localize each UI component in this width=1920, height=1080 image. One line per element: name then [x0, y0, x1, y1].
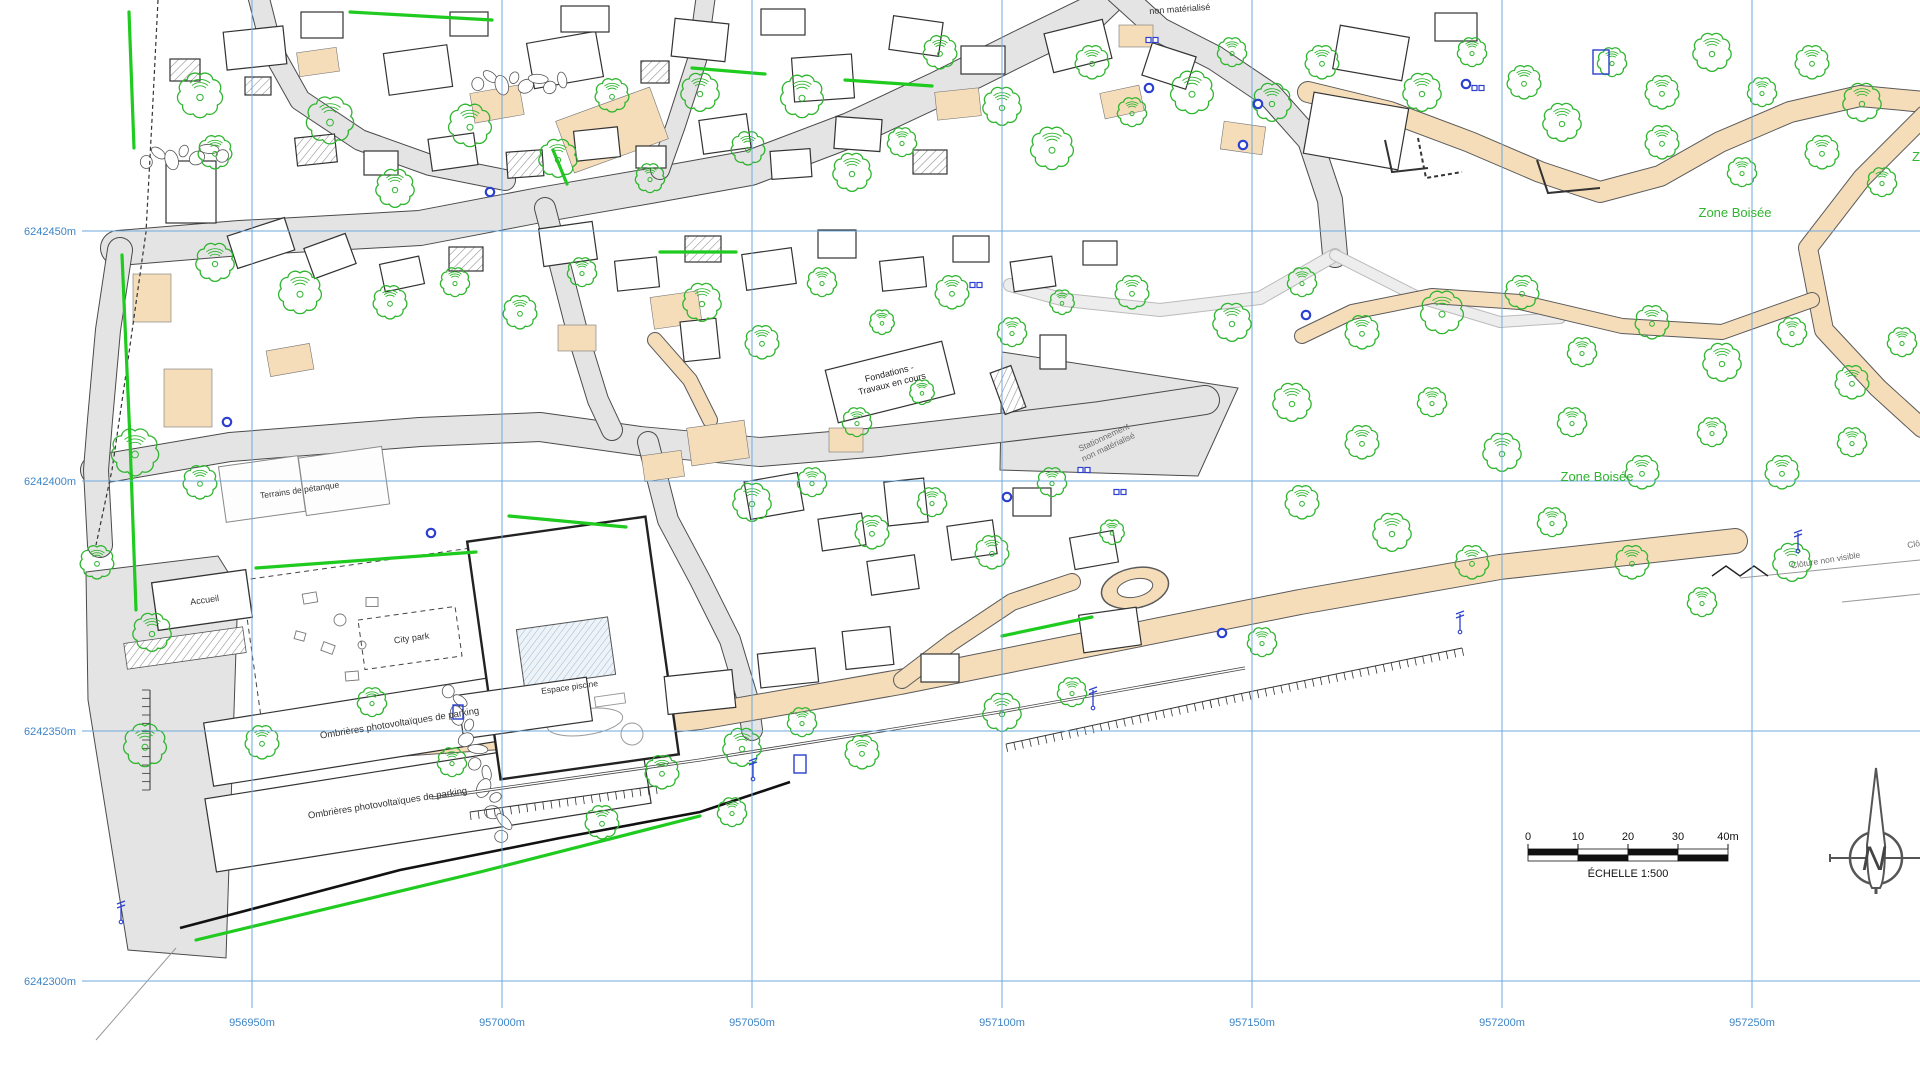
grid-label-y: 6242450m [24, 226, 76, 238]
tree-icon [797, 468, 826, 497]
tree-icon [1645, 126, 1679, 159]
tree-trunk [930, 501, 934, 505]
hedge-line [553, 150, 567, 184]
tree-canopy-arc [194, 473, 206, 475]
tree-canopy-arc [192, 83, 208, 86]
tree-canopy-arc [1428, 396, 1436, 397]
tree-outline [1171, 71, 1214, 113]
tree-icon [1507, 66, 1541, 99]
comb-tick [1155, 712, 1157, 720]
tree-trunk [699, 301, 704, 306]
tree-trunk [855, 421, 859, 425]
building [383, 45, 452, 95]
scale-segment [1628, 849, 1678, 855]
scale-tick-label: 30 [1672, 831, 1684, 843]
grid-label-y: 6242350m [24, 726, 76, 738]
tree-canopy-arc [1520, 75, 1529, 77]
scale-segment [1628, 855, 1678, 861]
pole-arm [1089, 687, 1097, 690]
tree-trunk [1419, 91, 1424, 96]
tree-icon [1345, 426, 1379, 459]
fence-zigzag [1712, 566, 1768, 576]
building [671, 18, 729, 61]
tree-trunk [900, 141, 904, 145]
tree-trunk [388, 301, 393, 306]
comb-tick [1399, 661, 1401, 669]
tree-canopy-arc [1707, 44, 1717, 46]
comb-tick [1030, 739, 1032, 747]
zone-boisee-label-1: Zone Boisée [1699, 205, 1772, 220]
tree-icon [1645, 76, 1679, 109]
building [1079, 607, 1142, 653]
tree-canopy-arc [1658, 85, 1667, 87]
tree-canopy-arc [756, 333, 768, 335]
comb-tick [1265, 689, 1267, 697]
comb-tick [1116, 720, 1118, 728]
site-plan-map: 956950m957000m957050m957100m957150m95720… [0, 0, 1920, 1080]
comb-tick [1077, 729, 1079, 737]
tree-icon [1693, 33, 1731, 71]
tree-icon [177, 73, 222, 118]
building [818, 230, 856, 258]
tree-trunk [198, 481, 203, 486]
zone-boisee-label-truncated-line: Z [1912, 149, 1920, 164]
building [574, 127, 621, 161]
tree-canopy-arc [1356, 433, 1368, 435]
comb-tick [1163, 710, 1165, 718]
comb-tick [1383, 664, 1385, 672]
tree-icon [1543, 103, 1581, 141]
tree-canopy-arc [1646, 313, 1658, 315]
tree-canopy-arc [1227, 314, 1237, 316]
tree-icon [1777, 318, 1806, 347]
tree-trunk [1850, 441, 1854, 445]
utility-box-icon [1078, 468, 1083, 473]
beige-path-2 [1302, 296, 1812, 336]
tree-canopy-arc [1046, 139, 1057, 141]
tree-canopy-arc [516, 305, 525, 307]
tree-icon [585, 806, 619, 839]
building [761, 9, 805, 35]
building [380, 256, 425, 292]
tree-canopy-arc [1109, 527, 1116, 528]
north-letter: N [1862, 840, 1887, 878]
tree-canopy-arc [1555, 111, 1569, 113]
building [166, 161, 216, 223]
tree-trunk [1522, 81, 1527, 86]
tree-canopy-arc [1698, 596, 1706, 597]
tree-canopy-arc [1738, 166, 1746, 167]
tree-icon [1031, 127, 1074, 169]
hedge-line [129, 12, 134, 148]
water-valve-icon [486, 188, 494, 196]
playground-equipment-icon [294, 631, 306, 641]
comb-tick [1281, 685, 1283, 693]
tree-trunk [660, 771, 665, 776]
tree-trunk [1850, 381, 1855, 386]
tree-canopy-arc [1285, 391, 1299, 393]
utility-pole-icon [749, 758, 757, 781]
tree-trunk [1580, 351, 1584, 355]
tree-canopy-arc [1468, 555, 1477, 557]
tree-trunk [760, 341, 765, 346]
scale-segment [1528, 855, 1578, 861]
comb-tick [1446, 651, 1448, 659]
tree-trunk [1260, 641, 1264, 645]
tree-icon [376, 169, 414, 207]
comb-tick [1320, 677, 1322, 685]
tree-icon [1171, 71, 1214, 113]
pole-base [119, 920, 123, 924]
tree-trunk [1709, 51, 1714, 56]
tree-icon [935, 276, 969, 309]
tree-icon [745, 326, 779, 359]
zone-boisee-label-truncated: Z [1912, 149, 1920, 164]
tree-trunk [392, 187, 397, 192]
comb-tick [1305, 681, 1307, 689]
hedge-line [256, 552, 476, 568]
tree-trunk [1389, 531, 1394, 536]
tree-trunk [1049, 147, 1055, 153]
comb-tick [1061, 732, 1063, 740]
tree-trunk [860, 751, 865, 756]
comb-tick [1360, 669, 1362, 677]
tree-trunk [1719, 361, 1724, 366]
water-valve-icon [223, 418, 231, 426]
utility-box-icon [1085, 468, 1090, 473]
tree-canopy-arc [1708, 426, 1716, 427]
tree-canopy-arc [1656, 83, 1668, 85]
city-park-label-line: City park [393, 631, 430, 646]
tree-canopy-arc [1417, 84, 1427, 86]
tree-canopy-arc [1788, 326, 1796, 327]
non-materialise-top-label: non matérialisé [1149, 2, 1211, 16]
zone-boisee-label-2: Zone Boisée [1561, 469, 1634, 484]
tree-outline [279, 271, 322, 313]
water-valve-icon [427, 529, 435, 537]
comb-tick [1218, 698, 1220, 706]
tree-trunk [1740, 171, 1744, 175]
building [757, 648, 818, 688]
zone-boisee-label-1-line: Zone Boisée [1699, 205, 1772, 220]
grid-label-x: 956950m [229, 1017, 275, 1029]
tree-canopy-arc [194, 86, 206, 88]
tree-icon [1597, 48, 1626, 77]
tree-icon [645, 756, 679, 789]
tree-trunk [810, 481, 814, 485]
building [1083, 241, 1117, 265]
tree-canopy-arc [1296, 493, 1308, 495]
tree-trunk [1820, 151, 1825, 156]
building [961, 46, 1005, 74]
comb-tick [1202, 702, 1204, 710]
scale-segment [1678, 855, 1728, 861]
utility-box-icon [1479, 86, 1484, 91]
building [884, 478, 928, 526]
building [867, 555, 919, 595]
tree-trunk [610, 94, 615, 99]
hatched-building [506, 150, 544, 178]
tree-canopy-arc [858, 745, 867, 747]
tree-canopy-arc [1808, 55, 1817, 57]
tree-trunk [1570, 421, 1574, 425]
tree-trunk [1640, 471, 1645, 476]
playground-equipment-icon [334, 614, 346, 626]
building [742, 248, 797, 291]
hatched-building [641, 61, 669, 83]
tree-canopy-arc [1048, 476, 1056, 477]
tree-trunk [1760, 91, 1764, 95]
comb-tick [1249, 692, 1251, 700]
grid-label-y: 6242400m [24, 476, 76, 488]
tree-icon [1417, 388, 1446, 417]
tree-trunk [1610, 61, 1614, 65]
tree-canopy-arc [1656, 133, 1668, 135]
tree-canopy-arc [1578, 346, 1586, 347]
tree-trunk [730, 811, 734, 815]
scale-tick-label: 0 [1525, 831, 1531, 843]
comb-tick [1171, 708, 1173, 716]
tree-icon [1403, 73, 1441, 111]
tree-canopy-arc [1816, 143, 1828, 145]
tree-canopy-arc [948, 285, 957, 287]
comb-tick [1186, 705, 1188, 713]
building [680, 318, 720, 362]
comb-tick [1210, 700, 1212, 708]
tree-icon [717, 798, 746, 827]
utility-pole-icon [1089, 687, 1097, 710]
tree-trunk [1790, 331, 1794, 335]
tree-icon [1537, 508, 1566, 537]
tree-canopy-arc [1287, 394, 1297, 396]
pole-base [1796, 549, 1800, 553]
comb-tick [1179, 707, 1181, 715]
tree-canopy-arc [451, 276, 459, 277]
tree-trunk [518, 311, 523, 316]
tree-canopy-arc [1387, 524, 1397, 526]
comb-tick [1069, 730, 1071, 738]
utility-box-icon [1153, 38, 1158, 43]
tree-trunk [467, 124, 473, 130]
tree-trunk [870, 531, 875, 536]
comb-tick [1139, 715, 1141, 723]
tree-trunk [1559, 121, 1564, 126]
tree-trunk [1660, 141, 1665, 146]
tree-trunk [600, 821, 605, 826]
hatched-building [913, 150, 947, 174]
cloture-label-truncated: Clô [1906, 538, 1920, 550]
tan-patch [687, 420, 750, 466]
tree-icon [1837, 428, 1866, 457]
tree-icon [373, 286, 407, 319]
grid-label-x: 957200m [1479, 1017, 1525, 1029]
tree-canopy-arc [1518, 73, 1530, 75]
tree-icon [723, 728, 761, 766]
tan-patch [297, 47, 340, 76]
playground-equipment-icon [345, 671, 359, 681]
utility-box-icon [1146, 38, 1151, 43]
tree-canopy-arc [1715, 351, 1729, 353]
road-5 [96, 250, 120, 545]
tree-trunk [1360, 331, 1365, 336]
tree-canopy-arc [1658, 135, 1667, 137]
comb-tick [1423, 656, 1425, 664]
building [953, 236, 989, 262]
pole-base [1091, 706, 1095, 710]
tree-trunk [1700, 601, 1704, 605]
tree-canopy-arc [1258, 636, 1266, 637]
tree-canopy-arc [1358, 435, 1367, 437]
tree-canopy-arc [448, 756, 456, 757]
tree-outline [1031, 127, 1074, 169]
tree-canopy-arc [1298, 495, 1307, 497]
tan-patch [1119, 25, 1153, 47]
comb-tick [1289, 684, 1291, 692]
comb-tick [1462, 648, 1464, 656]
hatched-building [685, 236, 721, 262]
tree-canopy-arc [1468, 46, 1476, 47]
tree-canopy-arc [608, 88, 617, 90]
building [770, 149, 812, 180]
tree-icon [1567, 338, 1596, 367]
comb-tick [1242, 694, 1244, 702]
comb-tick [1431, 655, 1433, 663]
grid-label-x: 957150m [1229, 1017, 1275, 1029]
tree-canopy-arc [384, 293, 396, 295]
scale-tick-label: 40m [1717, 831, 1738, 843]
pole-arm [1794, 530, 1802, 533]
building [921, 654, 959, 682]
rock [508, 71, 521, 85]
tree-canopy-arc [1776, 463, 1788, 465]
tree-canopy-arc [868, 525, 877, 527]
tree-trunk [95, 561, 100, 566]
tree-icon [183, 466, 217, 499]
comb-tick [1092, 725, 1094, 733]
comb-tick [1273, 687, 1275, 695]
tree-icon [1057, 678, 1086, 707]
playground-equipment-icon [302, 592, 318, 604]
tree-canopy-arc [606, 86, 618, 88]
tree-trunk [1229, 321, 1234, 326]
building [450, 12, 488, 36]
map-canvas: 956950m957000m957050m957100m957150m95720… [0, 0, 1920, 1080]
tree-trunk [800, 721, 804, 725]
tree-icon [787, 708, 816, 737]
water-valve-icon [1302, 311, 1310, 319]
tree-canopy-arc [1648, 315, 1657, 317]
tree-trunk [1550, 521, 1554, 525]
tree-canopy-arc [386, 295, 395, 297]
comb-tick [1352, 671, 1354, 679]
tree-icon [845, 736, 879, 769]
comb-tick [1147, 714, 1149, 722]
tree-trunk [1189, 91, 1195, 97]
tree-icon [1345, 316, 1379, 349]
comb-tick [1022, 741, 1024, 749]
hatched-building [449, 247, 483, 271]
terrain-line [1842, 594, 1920, 602]
comb-tick [1368, 668, 1370, 676]
comb-tick [1407, 659, 1409, 667]
tree-trunk [849, 171, 854, 176]
scale-segment [1578, 849, 1628, 855]
tree-trunk [1050, 481, 1054, 485]
utility-box-icon [977, 283, 982, 288]
water-valve-icon [1462, 80, 1470, 88]
tree-canopy-arc [758, 335, 767, 337]
tree-trunk [950, 291, 955, 296]
comb-tick [1391, 663, 1393, 671]
tree-trunk [1070, 691, 1074, 695]
tree-canopy-arc [808, 476, 816, 477]
city-park-label: City park [393, 631, 430, 646]
tree-canopy-arc [596, 813, 608, 815]
tree-canopy-arc [1638, 465, 1647, 467]
tree-icon [887, 128, 916, 157]
tree-icon [1703, 343, 1741, 381]
utility-box-icon [1472, 86, 1477, 91]
building [880, 257, 927, 291]
tan-patch [935, 88, 982, 120]
tan-patch [641, 450, 684, 481]
water-valve-icon [1003, 493, 1011, 501]
comb-tick [1297, 682, 1299, 690]
tree-canopy-arc [1516, 283, 1528, 285]
tree-canopy-arc [598, 815, 607, 817]
tree-canopy-arc [1466, 553, 1478, 555]
utility-box-icon [1121, 490, 1126, 495]
tree-canopy-arc [1356, 323, 1368, 325]
tree-canopy-arc [928, 496, 936, 497]
tree-trunk [1470, 51, 1474, 55]
playground-equipment-icon [366, 598, 378, 607]
tree-trunk [1430, 401, 1434, 405]
tree-canopy-arc [737, 739, 747, 741]
tree-canopy-arc [1898, 336, 1906, 337]
water-valve-icon [1254, 100, 1262, 108]
tree-canopy-arc [1557, 114, 1567, 116]
tree-icon [1795, 46, 1829, 79]
tree-icon [1273, 383, 1311, 421]
north-arrow: N [1830, 768, 1920, 894]
building [842, 627, 894, 670]
terrain-line [96, 948, 176, 1040]
comb-tick [1415, 658, 1417, 666]
tree-trunk [1130, 291, 1135, 296]
tree-canopy-arc [1705, 41, 1719, 43]
utility-box-icon [970, 283, 975, 288]
pole-base [751, 777, 755, 781]
tree-icon [440, 268, 469, 297]
tree-trunk [820, 281, 824, 285]
comb-tick [1108, 722, 1110, 730]
grid-label-y: 6242300m [24, 976, 76, 988]
scale-segment [1528, 849, 1578, 855]
comb-tick [1438, 653, 1440, 661]
comb-tick [1234, 695, 1236, 703]
tree-canopy-arc [1878, 176, 1886, 177]
building [615, 257, 660, 291]
rock [442, 685, 454, 698]
building [1010, 256, 1056, 292]
tree-canopy-arc [390, 180, 400, 182]
building [834, 116, 882, 151]
hatched-building [245, 77, 271, 95]
comb-tick [1045, 736, 1047, 744]
tree-trunk [580, 271, 584, 275]
tree-trunk [1710, 431, 1714, 435]
